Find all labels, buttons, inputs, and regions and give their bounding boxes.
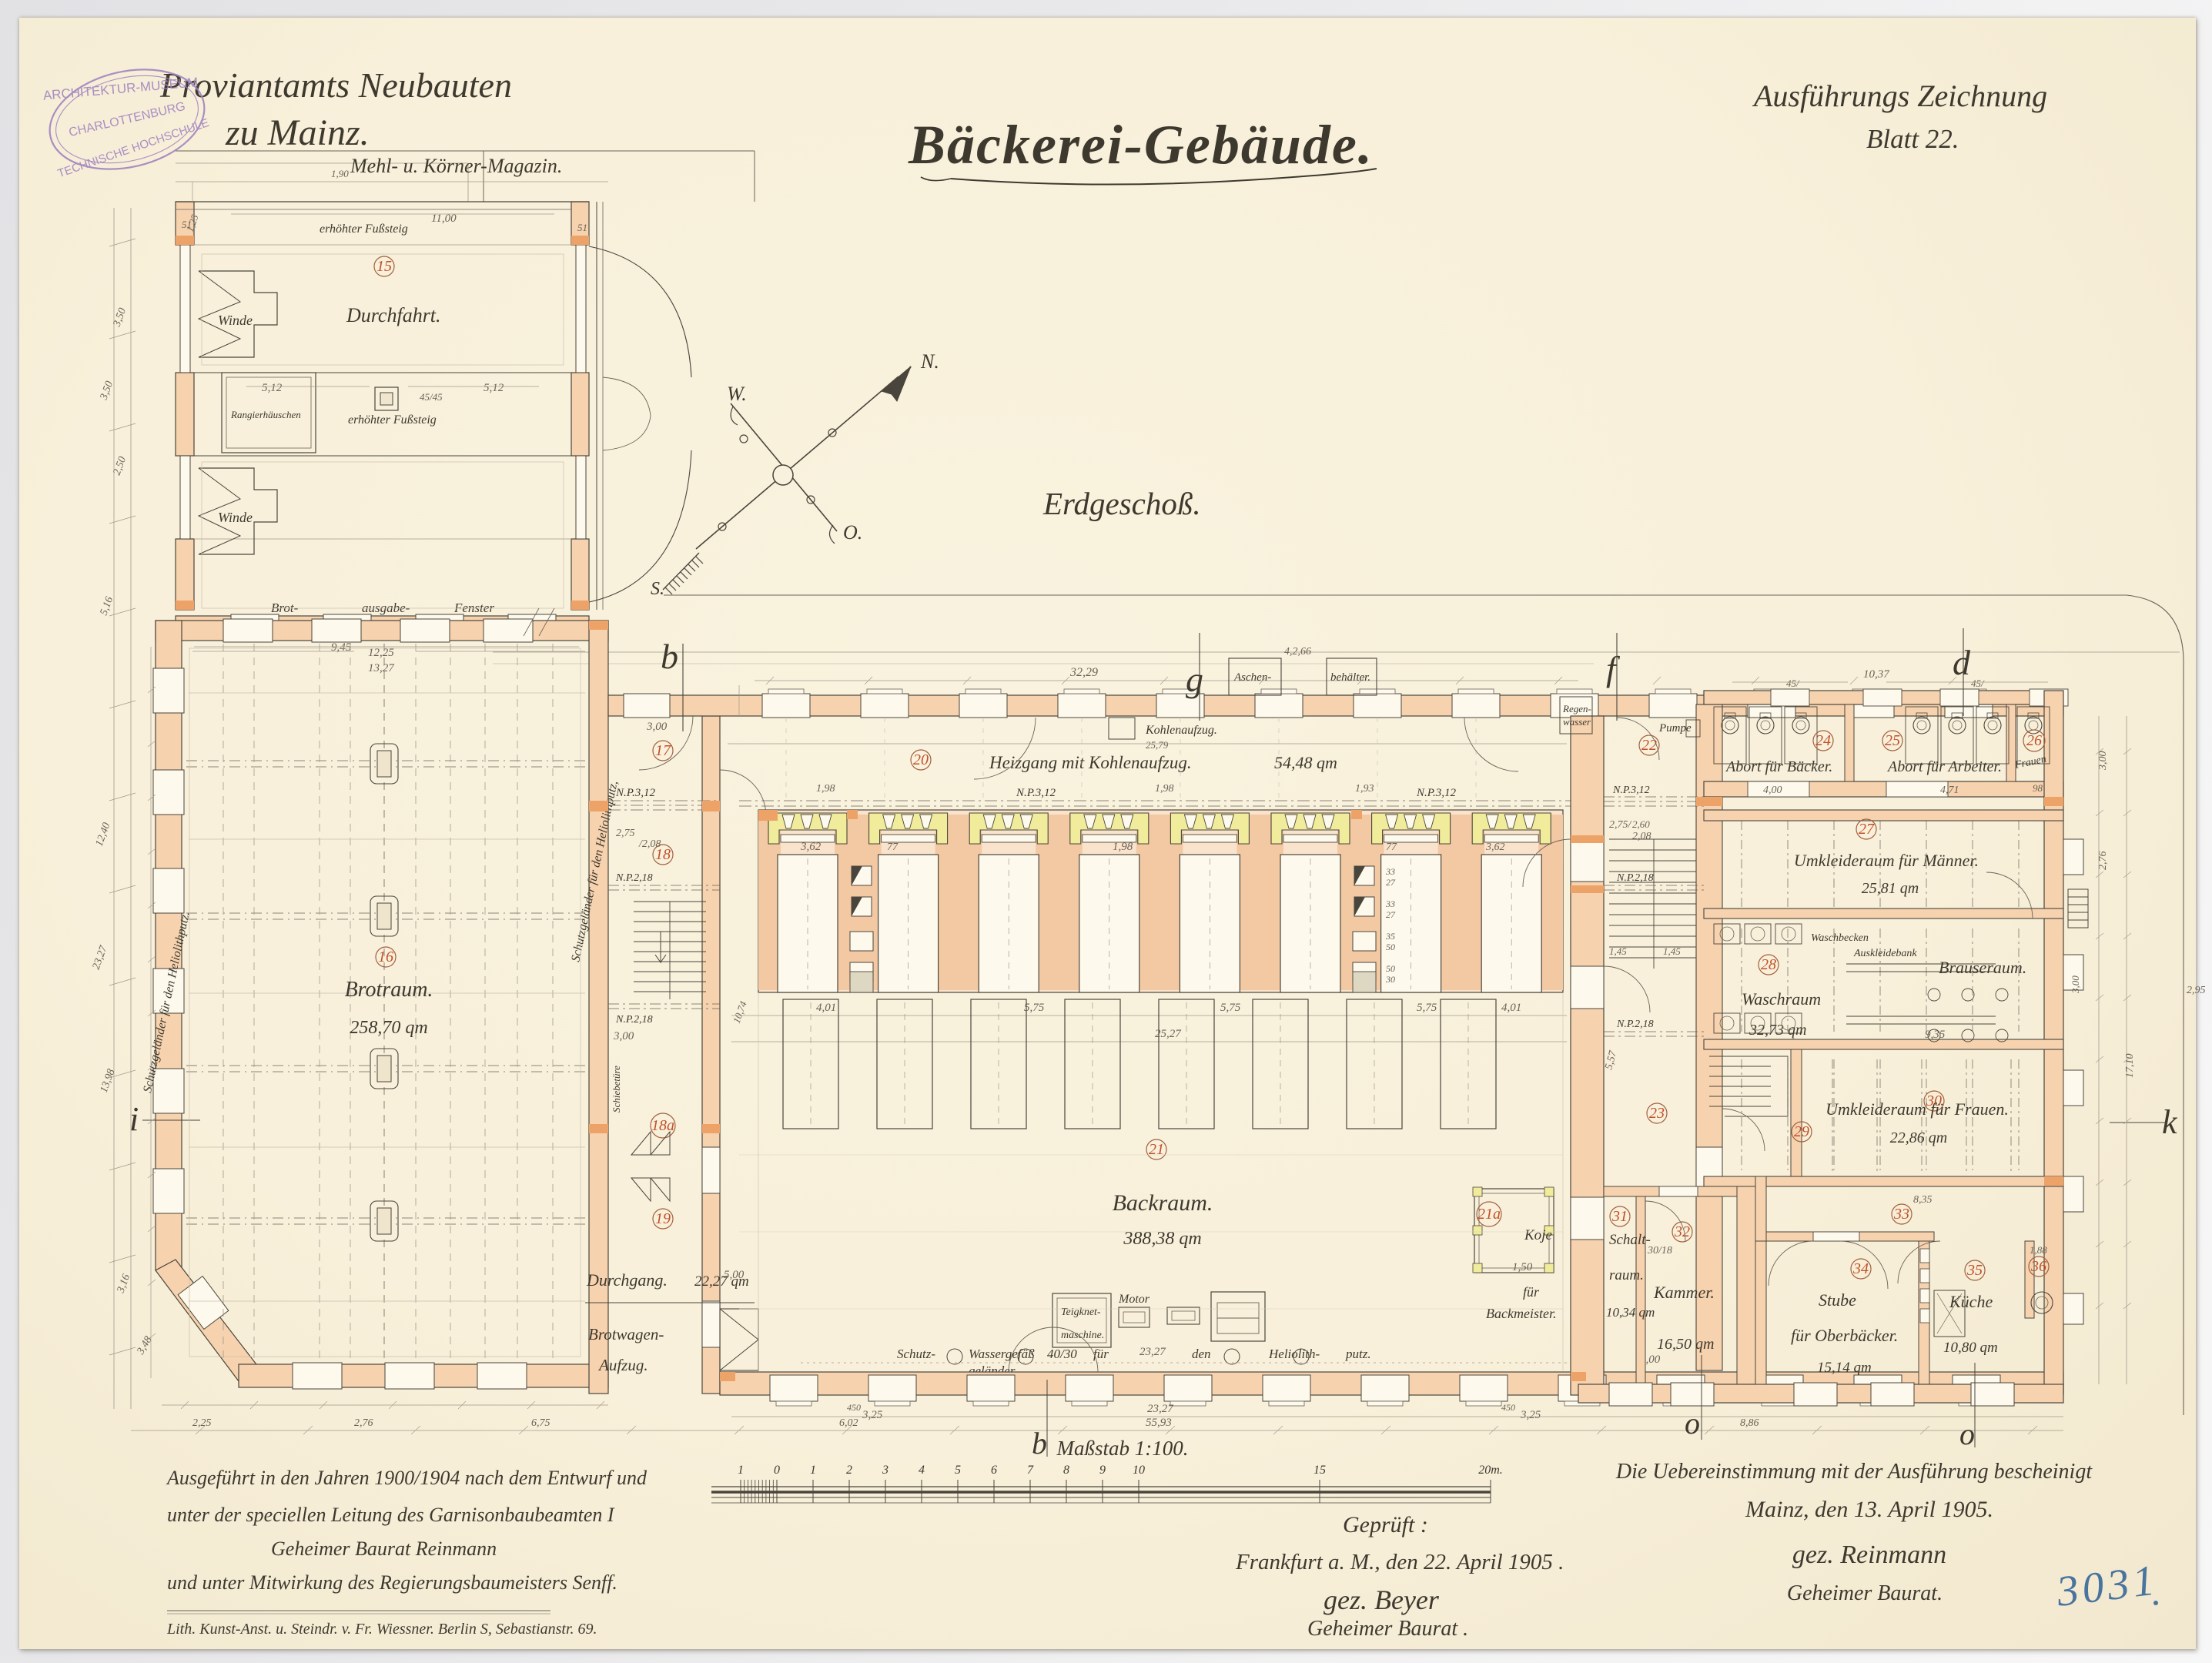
svg-text:12,25: 12,25 xyxy=(368,647,394,659)
svg-text:22,86 qm: 22,86 qm xyxy=(1890,1129,1947,1146)
svg-text:g: g xyxy=(1186,660,1203,699)
svg-text:10,34 qm: 10,34 qm xyxy=(1606,1305,1655,1320)
svg-text:Die Uebereinstimmung mit der A: Die Uebereinstimmung mit der Ausführung … xyxy=(1615,1460,2093,1484)
svg-text:Teigknet-: Teigknet- xyxy=(1061,1307,1101,1318)
svg-text:N.P.3,12: N.P.3,12 xyxy=(1016,787,1056,799)
svg-text:N.P.2,18: N.P.2,18 xyxy=(1616,1019,1654,1030)
svg-text:Waschbecken: Waschbecken xyxy=(1811,932,1869,944)
svg-text:W.: W. xyxy=(727,383,747,405)
svg-text:15: 15 xyxy=(1313,1464,1326,1477)
svg-text:Regen-: Regen- xyxy=(1562,703,1591,714)
svg-text:17: 17 xyxy=(655,742,671,759)
svg-text:4,01: 4,01 xyxy=(816,1002,836,1014)
svg-text:1,88: 1,88 xyxy=(2030,1244,2047,1256)
svg-text:5,12: 5,12 xyxy=(484,382,504,394)
svg-text:Winde: Winde xyxy=(218,313,253,328)
svg-text:N.: N. xyxy=(920,350,939,373)
svg-text:Pumpe: Pumpe xyxy=(1658,722,1692,734)
svg-text:Rangierhäuschen: Rangierhäuschen xyxy=(230,409,301,420)
svg-text:d: d xyxy=(1953,643,1971,682)
svg-text:3031: 3031 xyxy=(2053,1556,2161,1616)
svg-text:5,75: 5,75 xyxy=(1417,1002,1437,1014)
svg-text:2,95: 2,95 xyxy=(2187,985,2206,996)
svg-text:3,00: 3,00 xyxy=(2070,975,2081,994)
svg-text:33: 33 xyxy=(1385,866,1395,877)
svg-text:31: 31 xyxy=(1611,1208,1628,1225)
svg-text:32: 32 xyxy=(1674,1223,1690,1240)
svg-text:6,75: 6,75 xyxy=(531,1417,550,1429)
svg-text:33: 33 xyxy=(1385,898,1395,909)
svg-text:o: o xyxy=(1685,1406,1700,1440)
svg-text:10,80 qm: 10,80 qm xyxy=(1943,1340,1998,1356)
svg-text:9,35: 9,35 xyxy=(1925,1029,1946,1041)
svg-text:5,16: 5,16 xyxy=(99,595,115,617)
svg-text:45/: 45/ xyxy=(1971,678,1985,689)
svg-text:26: 26 xyxy=(2026,732,2042,749)
svg-text:Blatt 22.: Blatt 22. xyxy=(1866,124,1959,154)
svg-text:7: 7 xyxy=(1027,1464,1034,1477)
svg-text:24: 24 xyxy=(1815,732,1831,749)
svg-text:51: 51 xyxy=(577,222,587,233)
svg-text:Geheimer Baurat .: Geheimer Baurat . xyxy=(1307,1617,1468,1641)
svg-text:3,62: 3,62 xyxy=(1485,842,1505,853)
svg-text:Ausgeführt in den Jahren 1900/: Ausgeführt in den Jahren 1900/1904 nach … xyxy=(166,1467,648,1489)
svg-text:Umkleideraum für Männer.: Umkleideraum für Männer. xyxy=(1794,851,1979,870)
svg-text:Frauen: Frauen xyxy=(2013,754,2047,771)
svg-text:8,86: 8,86 xyxy=(1740,1417,1759,1429)
svg-text:4,2,66: 4,2,66 xyxy=(1284,646,1311,658)
svg-text:1,45: 1,45 xyxy=(1609,945,1627,957)
svg-text:Koje: Koje xyxy=(1524,1227,1552,1243)
svg-text:28: 28 xyxy=(1761,956,1776,973)
svg-text:16: 16 xyxy=(378,949,393,965)
svg-text:N.P.3,12: N.P.3,12 xyxy=(1612,785,1650,796)
svg-text:5,12: 5,12 xyxy=(262,382,283,394)
svg-text:1,98: 1,98 xyxy=(816,783,835,795)
svg-text:22: 22 xyxy=(1641,737,1657,754)
svg-text:4,01: 4,01 xyxy=(1501,1002,1521,1014)
svg-text:Erdgeschoß.: Erdgeschoß. xyxy=(1042,486,1201,521)
svg-text:40/30: 40/30 xyxy=(1047,1347,1077,1361)
svg-text:Bäckerei-Gebäude.: Bäckerei-Gebäude. xyxy=(908,114,1374,176)
svg-text:Schalt-: Schalt- xyxy=(1609,1232,1651,1248)
svg-text:23,27: 23,27 xyxy=(91,944,110,972)
svg-text:6,02: 6,02 xyxy=(839,1417,858,1429)
svg-text:N.P.3,12: N.P.3,12 xyxy=(1416,787,1456,799)
svg-text:Kammer.: Kammer. xyxy=(1653,1283,1715,1302)
svg-text:54,48 qm: 54,48 qm xyxy=(1274,753,1337,772)
svg-text:20m.: 20m. xyxy=(1478,1464,1503,1477)
svg-text:Proviantamts Neubauten: Proviantamts Neubauten xyxy=(159,65,512,105)
svg-text:und unter Mitwirkung des Regie: und unter Mitwirkung des Regierungsbaume… xyxy=(167,1571,617,1594)
svg-text:unter der speciellen Leitung d: unter der speciellen Leitung des Garniso… xyxy=(167,1504,615,1526)
svg-text:36: 36 xyxy=(2030,1258,2046,1275)
svg-text:3: 3 xyxy=(882,1464,888,1477)
svg-text:3,16: 3,16 xyxy=(115,1273,132,1295)
svg-text:6: 6 xyxy=(991,1464,997,1477)
svg-text:35: 35 xyxy=(1966,1262,1983,1279)
svg-text:55,93: 55,93 xyxy=(1146,1417,1172,1429)
svg-text:30/18: 30/18 xyxy=(1647,1245,1672,1256)
svg-text:Küche: Küche xyxy=(1949,1292,1993,1311)
svg-text:10,74: 10,74 xyxy=(731,999,749,1025)
svg-text:Abort für Arbeiter.: Abort für Arbeiter. xyxy=(1886,758,2002,775)
svg-text:Maßstab 1:100.: Maßstab 1:100. xyxy=(1056,1437,1189,1460)
svg-text:Winde: Winde xyxy=(218,510,253,525)
svg-text:23: 23 xyxy=(1649,1105,1665,1122)
svg-text:9,45: 9,45 xyxy=(331,641,352,654)
svg-text:50: 50 xyxy=(1386,963,1395,974)
svg-text:13,98: 13,98 xyxy=(99,1068,118,1095)
svg-text:10,37: 10,37 xyxy=(1863,668,1890,681)
svg-text:zu Mainz.: zu Mainz. xyxy=(225,112,370,153)
svg-text:o: o xyxy=(1959,1417,1975,1451)
svg-text:2: 2 xyxy=(846,1464,852,1477)
svg-text:N.P.2,18: N.P.2,18 xyxy=(615,872,653,884)
svg-text:50: 50 xyxy=(1386,942,1395,952)
svg-text:Frankfurt a. M., den 22. April: Frankfurt a. M., den 22. April 1905 . xyxy=(1235,1550,1564,1574)
svg-text:Kohlenaufzug.: Kohlenaufzug. xyxy=(1145,724,1217,737)
svg-text:Mehl- u. Körner-Magazin.: Mehl- u. Körner-Magazin. xyxy=(350,155,562,177)
svg-text:2,75: 2,75 xyxy=(616,828,635,839)
svg-text:f: f xyxy=(1606,649,1621,688)
svg-text:putz.: putz. xyxy=(1345,1347,1371,1361)
svg-text:Backmeister.: Backmeister. xyxy=(1486,1306,1556,1321)
svg-text:1: 1 xyxy=(738,1464,744,1477)
svg-text:12,40: 12,40 xyxy=(94,821,113,848)
svg-text:Ausführungs Zeichnung: Ausführungs Zeichnung xyxy=(1752,79,2047,113)
svg-text:Geheimer Baurat.: Geheimer Baurat. xyxy=(1787,1581,1943,1605)
svg-text:2,08: 2,08 xyxy=(1632,831,1651,842)
svg-text:Waschraum: Waschraum xyxy=(1742,989,1821,1009)
svg-text:den: den xyxy=(1192,1347,1211,1361)
svg-text:25,79: 25,79 xyxy=(1146,739,1169,751)
svg-text:Stube: Stube xyxy=(1819,1290,1856,1310)
svg-text:Brotwagen-: Brotwagen- xyxy=(588,1325,664,1343)
svg-text:3,00: 3,00 xyxy=(2097,751,2109,771)
svg-text:77: 77 xyxy=(1386,842,1397,853)
svg-text:27: 27 xyxy=(1386,909,1396,920)
svg-text:2,76: 2,76 xyxy=(354,1417,373,1429)
svg-text:5,75: 5,75 xyxy=(1220,1002,1241,1014)
svg-text:Brotraum.: Brotraum. xyxy=(345,978,433,1002)
svg-text:450: 450 xyxy=(847,1402,861,1413)
svg-text:5: 5 xyxy=(955,1464,961,1477)
svg-text:258,70 qm: 258,70 qm xyxy=(350,1018,427,1038)
svg-text:Fenster: Fenster xyxy=(453,601,494,615)
svg-text:Geheimer Baurat Reinmann: Geheimer Baurat Reinmann xyxy=(271,1538,497,1560)
svg-text:3,25: 3,25 xyxy=(1520,1409,1541,1421)
svg-text:gez. Reinmann: gez. Reinmann xyxy=(1792,1541,1946,1569)
svg-text:19: 19 xyxy=(655,1210,671,1227)
svg-text:27: 27 xyxy=(1859,821,1875,838)
svg-text:3,50: 3,50 xyxy=(98,380,115,402)
svg-text:Brauseraum.: Brauseraum. xyxy=(1939,958,2026,977)
svg-text:45/: 45/ xyxy=(1786,678,1800,689)
svg-text:21: 21 xyxy=(1149,1141,1164,1158)
svg-text:für: für xyxy=(1523,1284,1540,1300)
svg-text:98: 98 xyxy=(2033,782,2043,794)
svg-text:3,62: 3,62 xyxy=(800,841,822,853)
svg-text:4,71: 4,71 xyxy=(1940,785,1959,796)
svg-text:raum.: raum. xyxy=(1609,1267,1644,1283)
svg-text:15,14 qm: 15,14 qm xyxy=(1817,1360,1872,1376)
svg-text:77: 77 xyxy=(887,842,899,853)
svg-text:25,81 qm: 25,81 qm xyxy=(1862,880,1919,897)
svg-text:b: b xyxy=(661,637,678,676)
svg-text:30: 30 xyxy=(1385,974,1395,985)
svg-text:Umkleideraum für Frauen.: Umkleideraum für Frauen. xyxy=(1825,1099,2009,1119)
svg-text:32,29: 32,29 xyxy=(1069,666,1098,679)
svg-text:N.P.3,12: N.P.3,12 xyxy=(615,787,655,799)
svg-text:27: 27 xyxy=(1386,877,1396,888)
svg-text:33: 33 xyxy=(1893,1206,1909,1223)
svg-text:Schiebetüre: Schiebetüre xyxy=(611,1066,622,1113)
svg-text:Durchfahrt.: Durchfahrt. xyxy=(346,304,441,326)
svg-text:N.P.2,18: N.P.2,18 xyxy=(615,1014,653,1026)
svg-text:erhöhter Fußsteig: erhöhter Fußsteig xyxy=(348,413,437,427)
svg-text:20: 20 xyxy=(913,751,929,768)
svg-text:5,00: 5,00 xyxy=(724,1269,745,1281)
svg-text:15: 15 xyxy=(376,258,392,275)
svg-text:Motor: Motor xyxy=(1118,1293,1150,1306)
svg-text:35: 35 xyxy=(1385,931,1395,942)
svg-text:Abort für Bäcker.: Abort für Bäcker. xyxy=(1725,758,1832,775)
svg-text:18: 18 xyxy=(655,846,671,863)
svg-text:29: 29 xyxy=(1794,1123,1809,1140)
svg-text:Heizgang mit Kohlenaufzug.: Heizgang mit Kohlenaufzug. xyxy=(989,753,1192,772)
svg-text:Durchgang.: Durchgang. xyxy=(586,1270,668,1290)
svg-text:34: 34 xyxy=(1852,1260,1869,1277)
svg-text:2,60: 2,60 xyxy=(1632,818,1650,830)
svg-text:2,76: 2,76 xyxy=(2097,852,2109,871)
svg-text:Mainz, den 13. April 1905.: Mainz, den 13. April 1905. xyxy=(1745,1497,1993,1522)
svg-text:1: 1 xyxy=(810,1464,816,1477)
svg-text:Lith. Kunst-Anst. u. Steindr.: Lith. Kunst-Anst. u. Steindr. v. Fr. Wie… xyxy=(166,1621,597,1638)
svg-text:Geprüft :: Geprüft : xyxy=(1343,1512,1428,1538)
svg-text:O.: O. xyxy=(843,521,862,544)
svg-text:Backraum.: Backraum. xyxy=(1113,1190,1213,1216)
svg-text:8: 8 xyxy=(1063,1464,1069,1477)
svg-text:4,00: 4,00 xyxy=(1763,785,1782,796)
svg-text:8,35: 8,35 xyxy=(1913,1194,1933,1206)
svg-text:13,27: 13,27 xyxy=(368,662,395,674)
svg-text:für: für xyxy=(1093,1347,1109,1361)
svg-text:5,75: 5,75 xyxy=(1024,1002,1045,1014)
svg-text:S.: S. xyxy=(651,579,664,599)
svg-text:ausgabe-: ausgabe- xyxy=(362,601,410,615)
svg-text:1,98: 1,98 xyxy=(1113,841,1133,853)
svg-text:4: 4 xyxy=(919,1464,925,1477)
svg-text:10: 10 xyxy=(1133,1464,1145,1477)
svg-text:erhöhter Fußsteig: erhöhter Fußsteig xyxy=(320,223,408,236)
svg-text:45/45: 45/45 xyxy=(420,391,443,403)
svg-text:Aufzug.: Aufzug. xyxy=(597,1356,648,1374)
svg-text:23,27: 23,27 xyxy=(1139,1346,1166,1358)
svg-text:1,45: 1,45 xyxy=(1663,945,1681,957)
svg-text:3,00: 3,00 xyxy=(613,1030,634,1042)
svg-text:23,27: 23,27 xyxy=(1147,1403,1174,1415)
svg-text:Auskleidebank: Auskleidebank xyxy=(1853,948,1917,959)
svg-text:maschine.: maschine. xyxy=(1061,1330,1104,1341)
svg-text:450: 450 xyxy=(1501,1402,1515,1413)
svg-text:1,98: 1,98 xyxy=(1155,783,1174,795)
svg-text:18a: 18a xyxy=(651,1117,674,1134)
svg-text:16,50 qm: 16,50 qm xyxy=(1657,1336,1714,1353)
svg-text:3,25: 3,25 xyxy=(862,1409,883,1421)
svg-text:2,75/: 2,75/ xyxy=(1609,819,1632,831)
svg-text:0: 0 xyxy=(774,1464,780,1477)
svg-text:2,25: 2,25 xyxy=(192,1417,212,1429)
svg-text:b: b xyxy=(1032,1426,1047,1461)
svg-text:Schutz-: Schutz- xyxy=(897,1347,935,1361)
svg-text:25: 25 xyxy=(1885,732,1900,749)
svg-text:Brot-: Brot- xyxy=(271,601,299,615)
svg-text:gez. Beyer: gez. Beyer xyxy=(1324,1584,1440,1615)
svg-text:3,00: 3,00 xyxy=(646,721,668,733)
svg-text:1,93: 1,93 xyxy=(1355,783,1374,795)
svg-text:wasser: wasser xyxy=(1563,716,1591,728)
svg-text:für Oberbäcker.: für Oberbäcker. xyxy=(1791,1326,1898,1345)
svg-text:1,50: 1,50 xyxy=(1512,1261,1533,1273)
svg-text:9: 9 xyxy=(1099,1464,1106,1477)
svg-text:5,57: 5,57 xyxy=(1603,1049,1619,1072)
svg-text:51: 51 xyxy=(182,219,192,230)
svg-text:N.P.2,18: N.P.2,18 xyxy=(1616,872,1654,884)
svg-text:1,90: 1,90 xyxy=(331,168,349,179)
svg-text:3,48: 3,48 xyxy=(135,1334,155,1357)
svg-text:21a: 21a xyxy=(1477,1206,1501,1223)
